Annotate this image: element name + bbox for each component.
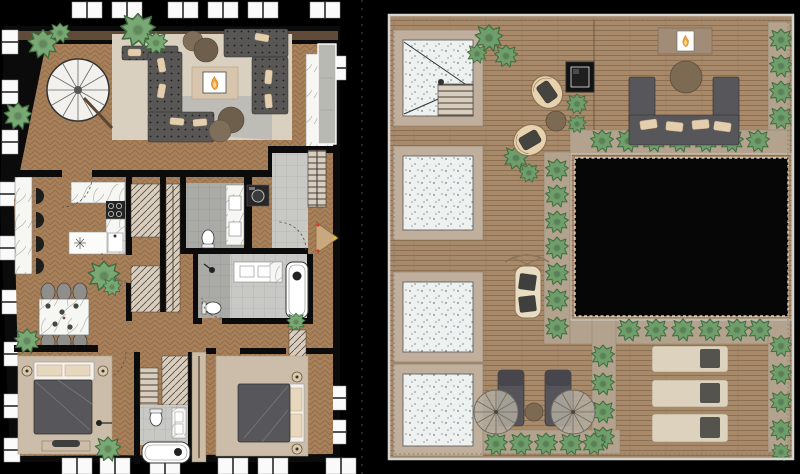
side-table [525,403,543,421]
cooktop [106,201,125,219]
central-void [571,154,792,320]
apartment-plan [0,2,356,474]
beige-loungers [652,346,728,442]
round-coffee-table [670,61,702,93]
toilet [202,230,214,248]
skylight [393,272,483,362]
roof-terrace-plan [389,15,793,461]
double-vanity [234,262,282,282]
floor-plan-image [0,0,800,474]
pillow [65,365,90,376]
void-opening [575,158,788,316]
dining-area [39,283,89,351]
floor-plan-sheet [0,0,800,474]
fire-table [566,62,594,92]
shower-room [198,254,230,318]
pillow [37,365,62,376]
toilet [150,409,162,426]
nightstand-lamp [22,366,32,376]
skylight-stair-access [393,30,483,126]
skylight [393,364,483,456]
kitchen-counter [71,182,125,203]
skylight [393,146,483,240]
gallery-strip [318,44,336,144]
kitchen-sink [108,233,123,252]
pillow [290,388,302,411]
fireplace-table [192,67,238,99]
nightstand-lamp [292,372,302,382]
bathtub [286,262,308,318]
stair-treads [438,84,473,116]
parasol [551,390,595,434]
parasol [474,390,518,434]
bed-bench [42,440,90,451]
bedroom-2 [216,356,308,456]
washer [247,185,269,206]
nightstand-lamp [98,366,108,376]
bathroom-2 [230,254,308,318]
pillow [290,414,302,437]
nightstand-lamp [292,444,302,454]
bathtub [142,442,190,463]
kitchen-island [15,177,32,274]
ensuite-bathroom [140,405,190,463]
outdoor-fireplace [658,28,712,54]
side-table [546,111,566,131]
